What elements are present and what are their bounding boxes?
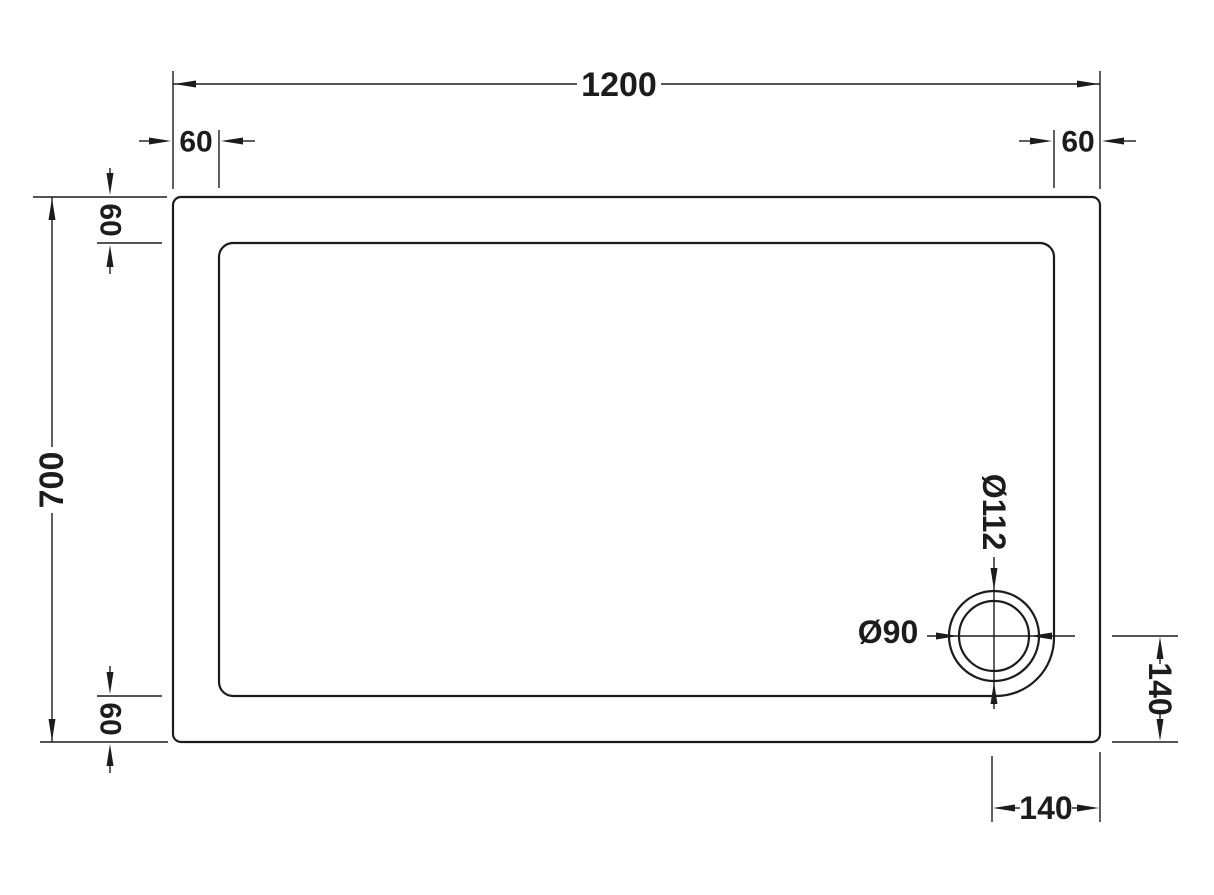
dim-top-left-offset-label: 60 bbox=[179, 126, 212, 159]
shower-tray-plan-drawing: 1200 60 60 700 60 bbox=[0, 0, 1214, 895]
dim-overall-width-label: 1200 bbox=[581, 66, 657, 104]
dim-overall-height-label: 700 bbox=[33, 452, 71, 509]
dim-waste-bottom-offset-label: 140 bbox=[1019, 790, 1072, 826]
technical-drawing-canvas: 1200 60 60 700 60 bbox=[0, 0, 1214, 895]
dim-top-right-offset-label: 60 bbox=[1061, 126, 1094, 159]
dim-waste-outer-diameter-label: Ø112 bbox=[976, 474, 1012, 551]
dim-waste-right-offset-label: 140 bbox=[1142, 662, 1178, 715]
dim-left-bottom-inset-label: 60 bbox=[94, 702, 127, 735]
dim-waste-inner-diameter-label: Ø90 bbox=[858, 614, 918, 650]
dim-left-top-inset-label: 60 bbox=[94, 203, 127, 236]
